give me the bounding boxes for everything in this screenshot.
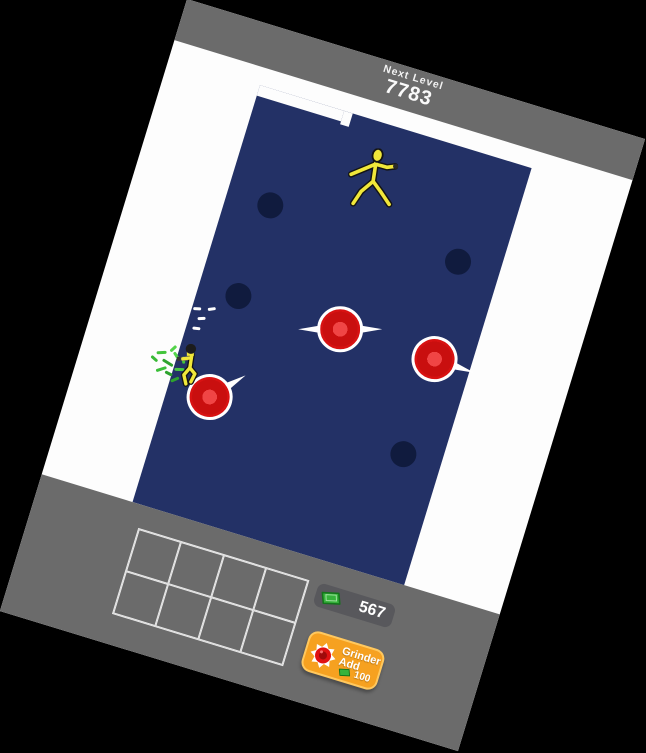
cash-icon-small: [337, 665, 352, 678]
grinder-icon: [307, 639, 339, 671]
cash-particle: [157, 351, 167, 354]
cash-particle: [156, 366, 167, 372]
cash-particle: [151, 355, 159, 362]
arena-field[interactable]: [133, 85, 532, 585]
cash-particle: [162, 358, 174, 367]
grinder-add-button[interactable]: Grinder Add 100: [299, 629, 387, 692]
cash-icon: [318, 587, 344, 609]
cash-particle: [169, 345, 177, 352]
money-value: 567: [356, 595, 389, 626]
money-counter: 567: [312, 582, 396, 629]
arena-top-step: [257, 85, 344, 121]
phone-screen: Next Level 7783: [0, 0, 645, 751]
inventory-grid: [112, 528, 309, 666]
stage: Next Level 7783: [0, 0, 646, 753]
